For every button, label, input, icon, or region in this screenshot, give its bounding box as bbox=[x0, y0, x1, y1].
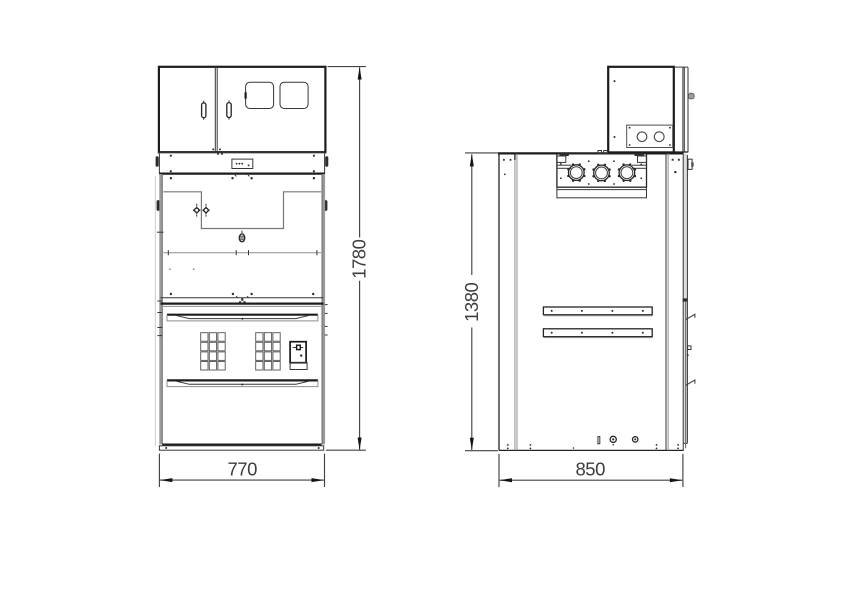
svg-text:1780: 1780 bbox=[349, 239, 370, 278]
svg-text:1380: 1380 bbox=[461, 283, 482, 322]
svg-text:770: 770 bbox=[228, 458, 258, 479]
svg-text:850: 850 bbox=[576, 458, 606, 479]
